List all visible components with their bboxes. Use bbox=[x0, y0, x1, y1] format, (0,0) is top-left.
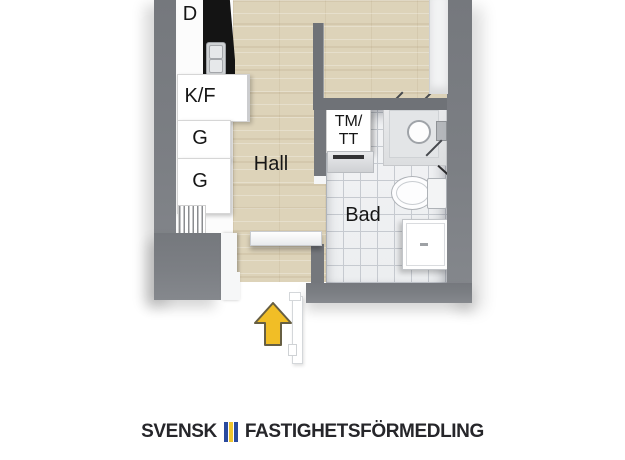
wall-hall-partition bbox=[313, 23, 324, 99]
brand-flag-icon bbox=[224, 422, 238, 442]
shower-mixer-icon bbox=[436, 121, 447, 141]
kitchen-sink bbox=[206, 42, 226, 76]
shower-drain-icon bbox=[407, 120, 431, 144]
sink-basin bbox=[209, 45, 223, 59]
flag-bar-yellow bbox=[229, 422, 233, 442]
washer-dryer-label: TT bbox=[339, 131, 359, 149]
hall-label: Hall bbox=[240, 153, 302, 177]
bathroom-label: Bad bbox=[333, 204, 393, 228]
wall-bottom-left-corner bbox=[154, 233, 221, 300]
fridge-freezer-label: K/F bbox=[179, 85, 221, 109]
window-sill-radiator bbox=[429, 0, 448, 94]
sink-basin bbox=[209, 59, 223, 73]
wall-bathroom-left bbox=[314, 110, 326, 178]
cabinet-handle bbox=[420, 243, 428, 246]
bathroom-door-open bbox=[250, 231, 322, 246]
brand-logo: SVENSK FASTIGHETSFÖRMEDLING bbox=[0, 417, 625, 447]
washer-front-slot bbox=[333, 155, 364, 159]
wall-bathroom-left-stub bbox=[311, 244, 324, 283]
wall-bathroom-top bbox=[313, 98, 447, 110]
floorplan-page: TM/ TT D K/F G G Hall Bad SVENSK FASTIGH… bbox=[0, 0, 625, 460]
wardrobe-label: G bbox=[177, 127, 223, 151]
brand-word-fastighetsformedling: FASTIGHETSFÖRMEDLING bbox=[245, 421, 484, 443]
washer-dryer-label: TM/ bbox=[335, 113, 363, 131]
wall-bottom bbox=[306, 283, 472, 303]
wardrobe-label: G bbox=[177, 170, 223, 194]
washer-dryer: TM/ TT bbox=[326, 109, 371, 153]
entrance-arrow-icon bbox=[254, 302, 292, 346]
brand-word-svensk: SVENSK bbox=[141, 421, 217, 443]
wall-right bbox=[447, 0, 472, 303]
dishwasher-label: D bbox=[176, 3, 204, 29]
toilet-tank bbox=[427, 178, 447, 209]
bathroom-door-jamb bbox=[314, 176, 326, 184]
flag-bar-blue bbox=[224, 422, 228, 442]
entrance-door-hinge bbox=[289, 292, 301, 301]
flag-bar-blue bbox=[234, 422, 238, 442]
entrance-wall-cap bbox=[228, 272, 240, 300]
